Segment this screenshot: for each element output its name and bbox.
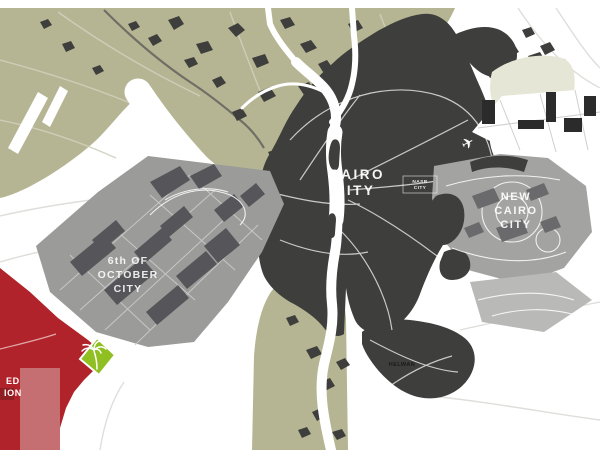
top-margin <box>0 0 600 8</box>
proposed-label-line1: ED <box>6 376 20 386</box>
october-city-label-line3: CITY <box>114 283 143 295</box>
new-cairo-label-line2: CAIRO <box>494 205 537 217</box>
red-zone-light-block <box>20 368 60 450</box>
cairo-city-label-line2: CITY <box>335 183 376 198</box>
cairo-map: ED ION ✈ NASR CITY CAIRO CITY NEW CAIRO … <box>0 0 600 450</box>
october-city-label-line2: OCTOBER <box>98 269 159 281</box>
helwan-label: HELWAN <box>389 362 416 368</box>
october-city-label-line1: 6th OF <box>108 255 148 267</box>
proposed-label-line2: ION <box>4 388 22 398</box>
nasr-city-label-line2: CITY <box>414 185 427 191</box>
new-cairo-label-line3: CITY <box>500 219 531 231</box>
map-canvas: ED ION ✈ NASR CITY CAIRO CITY NEW CAIRO … <box>0 0 600 450</box>
new-cairo-label-line1: NEW <box>501 191 531 203</box>
nasr-city-label-line1: NASR <box>412 179 427 185</box>
cairo-city-label-line1: CAIRO <box>329 167 385 182</box>
